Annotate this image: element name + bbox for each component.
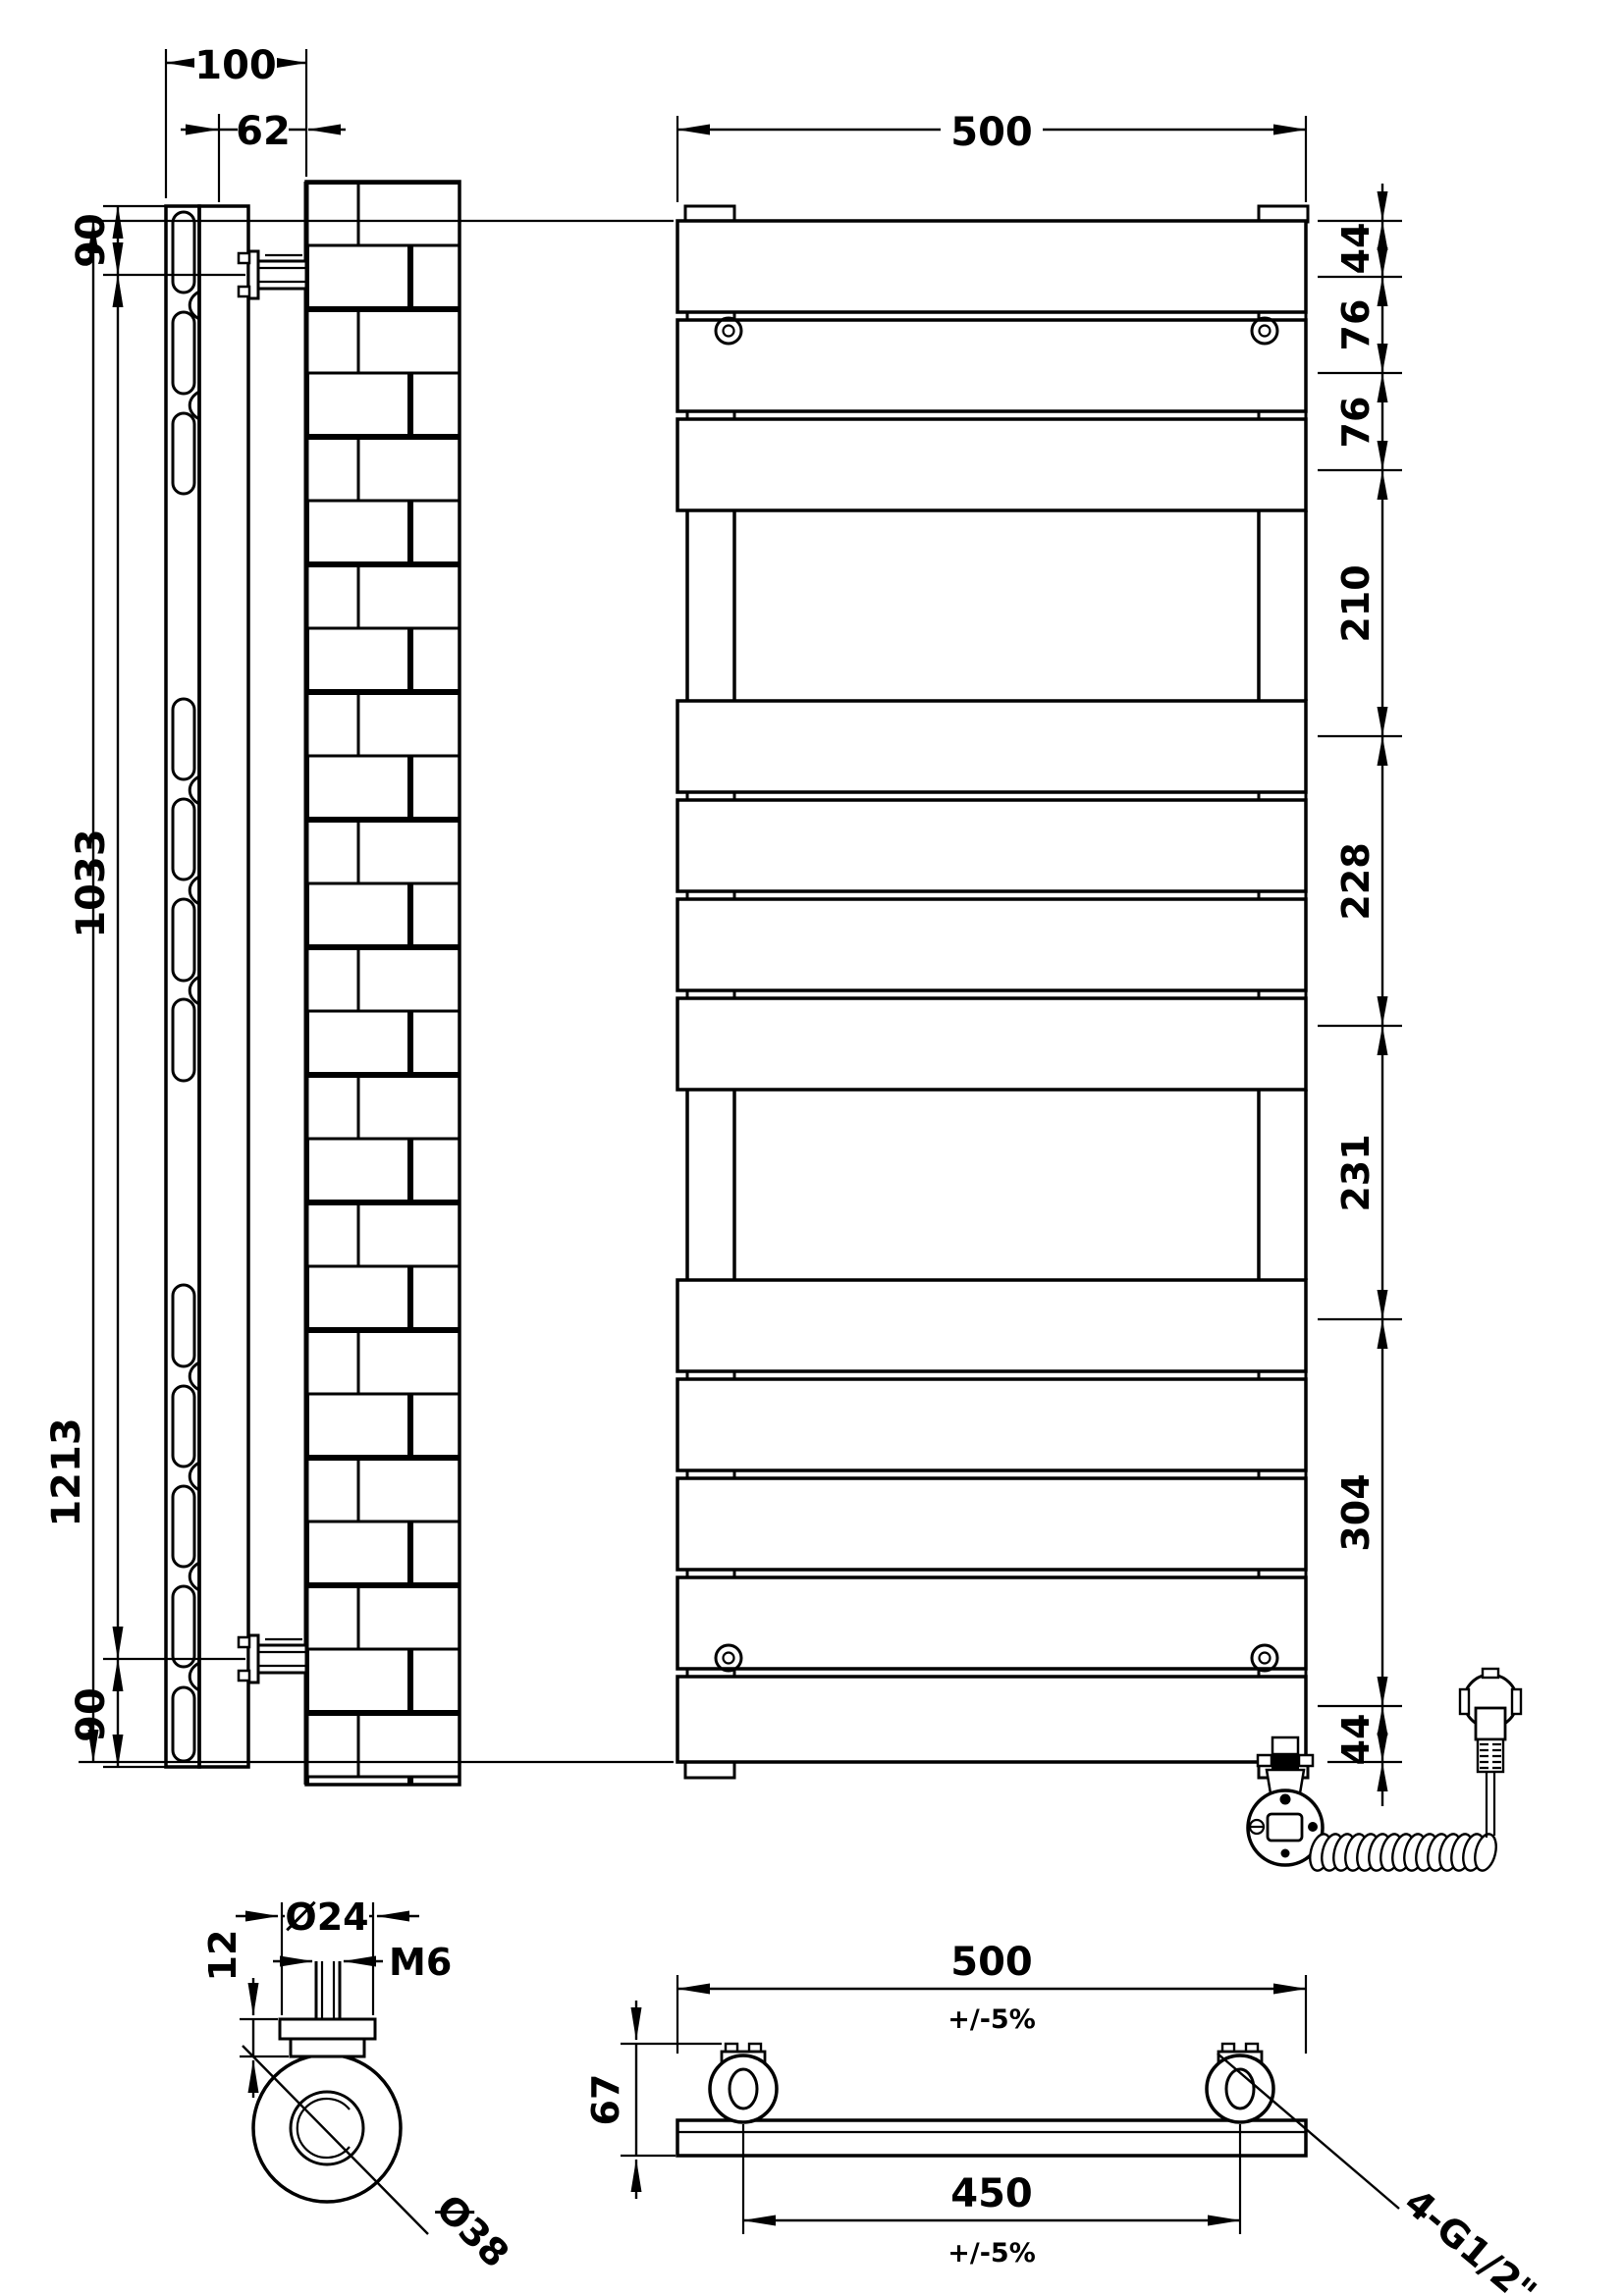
element-nut-left	[1258, 1755, 1271, 1766]
radiator-panel	[677, 419, 1306, 510]
bracket-detail-view: Ø24 M6 12 Ø38	[201, 1896, 517, 2276]
dim-side-bracket-centres: 1033	[69, 828, 114, 937]
vertical-tubes	[687, 510, 1306, 1280]
dim-detail-base-dia: Ø38	[428, 2186, 517, 2275]
wall-bracket-bottom	[239, 1635, 306, 1682]
radiator-panel	[677, 1280, 1306, 1371]
dim-plan-centres-tolerance: +/-5%	[947, 2238, 1036, 2269]
dim-chain-228: 228	[1334, 842, 1378, 920]
plug-earth-clip-right	[1512, 1689, 1521, 1714]
dim-plan-connections: 4-G1/2"	[1396, 2180, 1544, 2296]
bottom-foot-left	[685, 1762, 734, 1778]
plug-earth-clip-left	[1460, 1689, 1469, 1714]
coiled-cable	[1307, 1832, 1500, 1873]
bracket-base-plate	[253, 2055, 401, 2202]
power-plug	[1460, 1669, 1521, 1838]
connection-fitting-right	[1207, 2044, 1273, 2122]
radiator-panel	[677, 899, 1306, 990]
dim-chain-304: 304	[1334, 1473, 1378, 1551]
radiator-panel	[677, 1577, 1306, 1669]
plug-top-notch	[1483, 1669, 1498, 1678]
bracket-stud	[316, 1961, 340, 2019]
chain-labels: 44 76 76 210 228 231 304 44	[1334, 223, 1378, 1766]
dim-plan-centres: 450	[950, 2171, 1033, 2216]
plug-body	[1476, 1708, 1505, 1739]
dim-plan-depth: 67	[584, 2074, 627, 2126]
panel-bar	[677, 2120, 1306, 2156]
connection-fitting-left	[710, 2044, 777, 2122]
dim-chain-76-b: 76	[1334, 397, 1378, 449]
element-bush	[1271, 1753, 1299, 1770]
bracket-collar	[280, 2019, 375, 2039]
radiator-panel	[677, 1677, 1306, 1762]
brick-pattern	[306, 182, 460, 1785]
dim-plan-width-tolerance: +/-5%	[947, 2004, 1036, 2035]
dim-plan-width: 500	[950, 1940, 1033, 1985]
dim-chain-44-bottom: 44	[1334, 1714, 1378, 1766]
dim-side-bottom-offset: 90	[69, 1687, 114, 1742]
panel-stack	[677, 221, 1306, 1762]
thermostat-dot-right	[1308, 1822, 1318, 1832]
dim-chain-231: 231	[1334, 1134, 1378, 1211]
thermostat-display	[1268, 1814, 1302, 1841]
dim-detail-collar-dia: Ø24	[285, 1896, 368, 1939]
radiator-panel	[677, 320, 1306, 411]
dim-front-width: 500	[950, 110, 1033, 155]
radiator-panel	[677, 1379, 1306, 1470]
radiator-side-profile	[166, 206, 248, 1767]
thermostat-dot-top	[1280, 1794, 1291, 1805]
element-nut-right	[1299, 1755, 1313, 1766]
dim-side-overall-depth: 100	[194, 43, 277, 88]
dim-front-height: 1213	[44, 1417, 89, 1526]
bracket-collar-step	[291, 2039, 364, 2056]
dim-side-wall-to-bracket: 62	[236, 109, 291, 154]
side-view: 100 62 90 1033 90	[69, 41, 460, 1785]
vertical-tube-side	[199, 206, 248, 1767]
wall-bracket-top	[239, 251, 306, 298]
dim-chain-44-top: 44	[1334, 223, 1378, 275]
dim-detail-collar-depth: 12	[201, 1930, 244, 1982]
front-view: 500 1213	[44, 108, 1521, 1873]
radiator-panel	[677, 998, 1306, 1090]
dim-chain-210: 210	[1334, 564, 1378, 642]
radiator-panel	[677, 221, 1306, 312]
plan-view: 500 +/-5% 67 450 +/-5% 4-G1/2"	[584, 1940, 1544, 2296]
drawing-sheet: 100 62 90 1033 90	[0, 0, 1623, 2296]
radiator-panel	[677, 1478, 1306, 1570]
brick-wall	[306, 182, 460, 1785]
radiator-panel	[677, 800, 1306, 891]
thermostat-dot-bottom	[1281, 1849, 1290, 1858]
dim-detail-stud-thread: M6	[389, 1941, 452, 1984]
dim-chain-76-a: 76	[1334, 299, 1378, 351]
technical-drawing: 100 62 90 1033 90	[0, 0, 1623, 2296]
radiator-panel	[677, 701, 1306, 792]
element-nipple	[1272, 1737, 1298, 1754]
